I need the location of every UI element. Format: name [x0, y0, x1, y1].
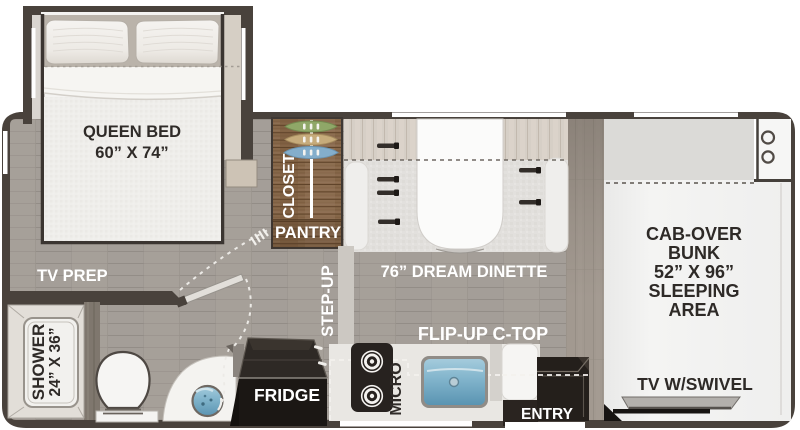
svg-text:SHOWER: SHOWER — [29, 324, 48, 401]
svg-text:QUEEN BED: QUEEN BED — [83, 123, 181, 141]
svg-text:MICRO: MICRO — [388, 362, 405, 415]
svg-text:60” X 74”: 60” X 74” — [95, 144, 168, 162]
svg-text:76” DREAM DINETTE: 76” DREAM DINETTE — [381, 263, 548, 281]
svg-text:52” X 96”: 52” X 96” — [654, 262, 734, 282]
svg-text:SLEEPING: SLEEPING — [648, 281, 739, 301]
svg-text:24” X 36”: 24” X 36” — [47, 328, 64, 397]
svg-text:CLOSET: CLOSET — [281, 153, 298, 218]
svg-text:AREA: AREA — [668, 300, 719, 320]
svg-text:CAB-OVER: CAB-OVER — [646, 224, 742, 244]
svg-text:STEP-UP: STEP-UP — [319, 265, 337, 337]
svg-text:TV PREP: TV PREP — [37, 267, 108, 285]
svg-text:ENTRY: ENTRY — [521, 406, 574, 423]
svg-text:PANTRY: PANTRY — [275, 224, 341, 242]
svg-text:BUNK: BUNK — [668, 243, 720, 263]
svg-text:TV W/SWIVEL: TV W/SWIVEL — [637, 374, 753, 394]
svg-text:FRIDGE: FRIDGE — [254, 385, 320, 405]
svg-text:FLIP-UP C-TOP: FLIP-UP C-TOP — [418, 324, 548, 344]
